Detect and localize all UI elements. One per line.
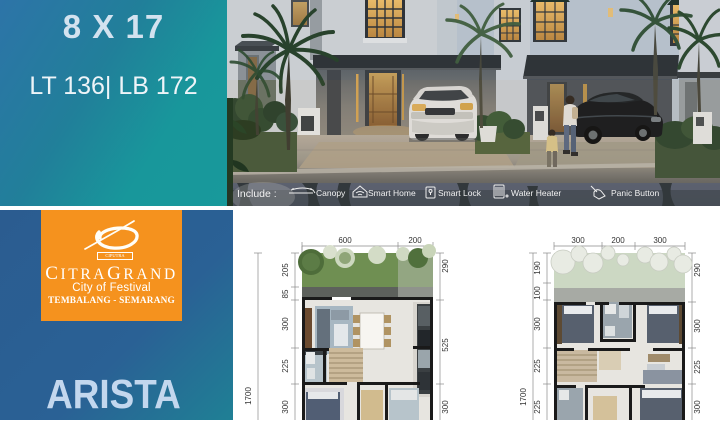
svg-text:225: 225: [533, 400, 542, 414]
svg-text:Smart Home: Smart Home: [368, 188, 416, 198]
svg-text:1700: 1700: [519, 388, 528, 406]
svg-text:300: 300: [281, 400, 290, 414]
svg-text:Include :: Include :: [237, 188, 277, 200]
svg-text:190: 190: [533, 261, 542, 275]
svg-text:225: 225: [533, 359, 542, 373]
svg-text:Water Heater: Water Heater: [511, 188, 561, 198]
svg-text:300: 300: [441, 400, 450, 414]
svg-text:300: 300: [653, 236, 667, 245]
svg-text:Smart Lock: Smart Lock: [438, 188, 482, 198]
svg-text:200: 200: [611, 236, 625, 245]
svg-text:100: 100: [533, 286, 542, 300]
svg-text:205: 205: [281, 263, 290, 277]
svg-text:200: 200: [408, 236, 422, 245]
svg-text:300: 300: [533, 317, 542, 331]
svg-text:290: 290: [693, 263, 702, 277]
svg-text:85: 85: [281, 289, 290, 298]
svg-text:225: 225: [693, 360, 702, 374]
svg-text:300: 300: [281, 317, 290, 331]
svg-text:525: 525: [441, 338, 450, 352]
svg-text:290: 290: [441, 259, 450, 273]
svg-text:Canopy: Canopy: [316, 188, 346, 198]
svg-text:Panic Button: Panic Button: [611, 188, 659, 198]
svg-text:300: 300: [571, 236, 585, 245]
svg-text:1700: 1700: [244, 387, 253, 405]
svg-text:300: 300: [693, 400, 702, 414]
svg-text:225: 225: [281, 359, 290, 373]
svg-text:300: 300: [693, 319, 702, 333]
svg-text:600: 600: [338, 236, 352, 245]
